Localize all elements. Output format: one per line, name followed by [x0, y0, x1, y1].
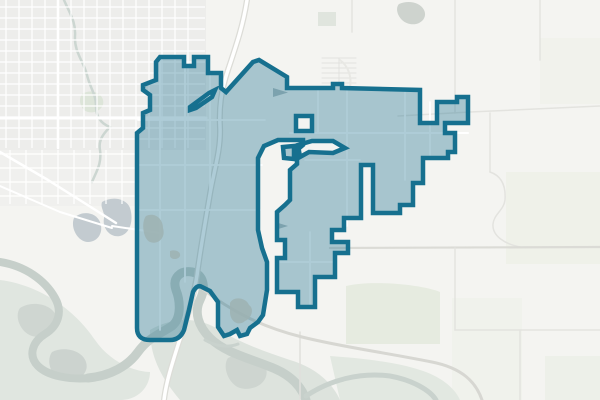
- landuse-shape: [318, 12, 336, 26]
- landuse-shape: [506, 172, 600, 264]
- landuse-shape: [452, 298, 522, 400]
- landuse-shape: [346, 283, 440, 344]
- landuse-shape: [545, 356, 600, 400]
- map-viewport: [0, 0, 600, 400]
- landuse-shape: [540, 38, 600, 104]
- landuse-shape: [0, 150, 140, 206]
- road-line: [330, 247, 600, 248]
- map-canvas[interactable]: [0, 0, 600, 400]
